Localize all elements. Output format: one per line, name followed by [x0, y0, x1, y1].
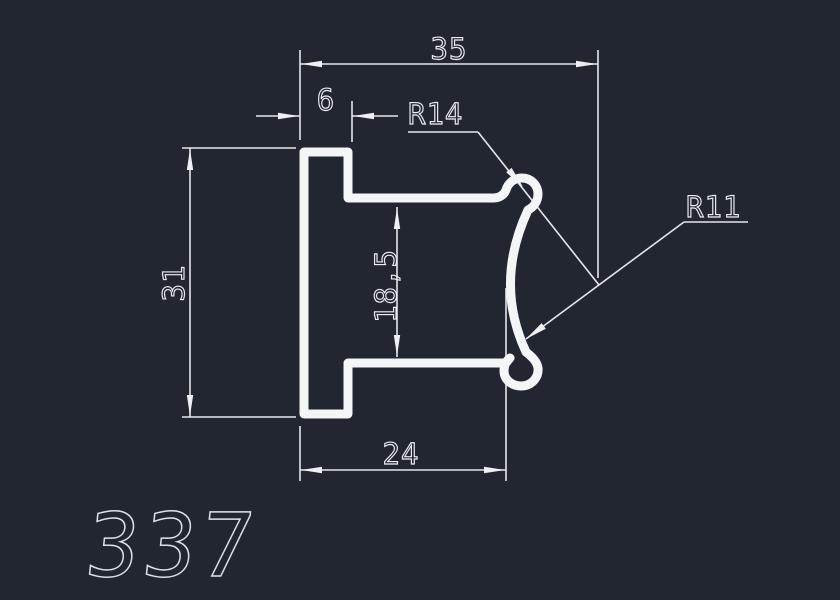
leader-line: [526, 222, 684, 339]
dim-18-5-label: 18,5: [369, 249, 403, 323]
dim-35-label: 35: [431, 32, 468, 66]
leader-line: [478, 132, 599, 285]
cad-drawing-canvas: 35 6 31 18,5: [0, 0, 840, 600]
arrowhead-left-icon: [278, 113, 299, 119]
part-number: 337: [81, 494, 263, 597]
dimension-tongue-width: 6: [256, 83, 398, 142]
radius-r11-label: R11: [686, 190, 741, 224]
arrowhead-down-icon: [394, 335, 400, 356]
profile-outline: [304, 152, 538, 414]
arrowhead-right-icon: [576, 61, 597, 67]
dimension-overall-height: 31: [157, 148, 296, 417]
arrowhead-right-icon: [353, 113, 374, 119]
arrowhead-up-icon: [187, 149, 193, 170]
technical-drawing: 35 6 31 18,5: [0, 0, 840, 600]
arrowhead-icon: [526, 323, 546, 339]
dim-31-label: 31: [157, 265, 191, 302]
dimension-bottom-width: 24: [300, 288, 506, 481]
arrowhead-left-icon: [301, 467, 322, 473]
arrowhead-down-icon: [187, 395, 193, 416]
radius-r14-label: R14: [408, 97, 463, 131]
arrowhead-left-icon: [301, 61, 322, 67]
arrowhead-right-icon: [484, 467, 505, 473]
dim-6-label: 6: [317, 83, 335, 117]
dim-24-label: 24: [383, 437, 420, 471]
dimension-inner-gap: 18,5: [369, 207, 403, 357]
arrowhead-up-icon: [394, 208, 400, 229]
radius-callout-r11: R11: [526, 190, 748, 339]
